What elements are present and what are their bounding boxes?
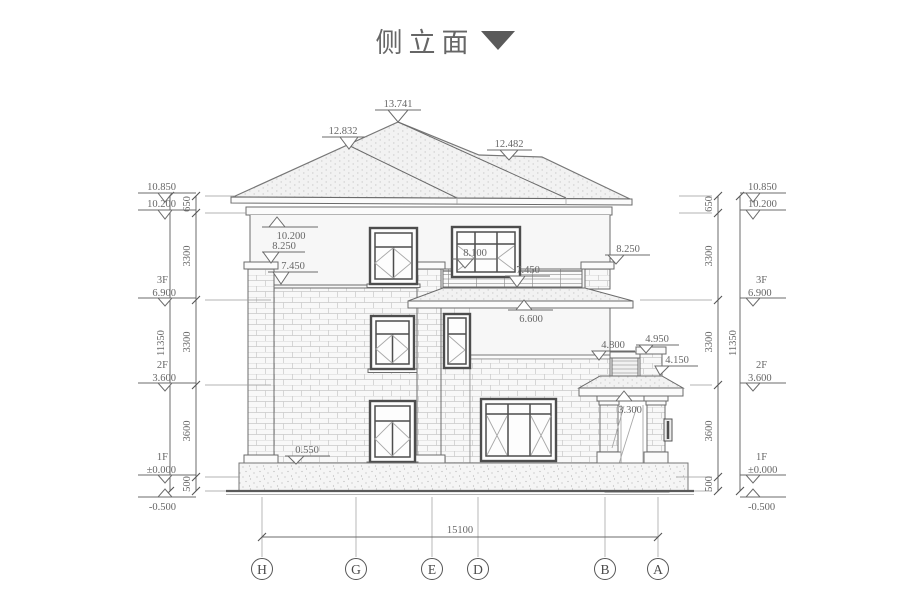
window-2f-left bbox=[368, 316, 417, 373]
pilaster-left bbox=[244, 262, 278, 464]
main-roof bbox=[231, 122, 632, 215]
svg-text:7.450: 7.450 bbox=[516, 265, 540, 276]
svg-text:4.950: 4.950 bbox=[645, 334, 669, 345]
axis-bubble-h: H bbox=[252, 559, 273, 580]
svg-text:3.300: 3.300 bbox=[618, 405, 642, 416]
dim-3300a-left: 3300 bbox=[182, 246, 193, 267]
svg-text:B: B bbox=[600, 562, 609, 577]
dim-500-right: 500 bbox=[704, 476, 715, 492]
svg-text:G: G bbox=[351, 562, 361, 577]
svg-text:±0.000: ±0.000 bbox=[147, 465, 176, 476]
plinth-and-ground bbox=[226, 463, 694, 495]
page-title: 侧立面 bbox=[376, 28, 475, 58]
svg-text:3.600: 3.600 bbox=[748, 373, 772, 384]
svg-text:4.150: 4.150 bbox=[665, 355, 689, 366]
axis-bubble-e: E bbox=[422, 559, 443, 580]
dim-3600-right: 3600 bbox=[704, 421, 715, 442]
title-arrow-icon bbox=[481, 31, 515, 50]
marker-cap-right-8250: 8.250 bbox=[605, 244, 650, 264]
dim-3300b-right: 3300 bbox=[704, 332, 715, 353]
axis-bubble-d: D bbox=[468, 559, 489, 580]
dim-3600-left: 3600 bbox=[182, 421, 193, 442]
svg-text:1F: 1F bbox=[157, 452, 168, 463]
porch-roof-fascia bbox=[579, 388, 683, 396]
eave-fascia bbox=[231, 197, 632, 205]
svg-text:D: D bbox=[473, 562, 483, 577]
level-2f-right: 2F 3.600 bbox=[740, 360, 786, 391]
svg-text:12.832: 12.832 bbox=[329, 126, 358, 137]
svg-text:8.100: 8.100 bbox=[463, 248, 487, 259]
porch-wall-light bbox=[664, 419, 672, 441]
svg-text:0.550: 0.550 bbox=[295, 445, 319, 456]
svg-text:12.482: 12.482 bbox=[495, 139, 524, 150]
svg-text:6.600: 6.600 bbox=[519, 314, 543, 325]
svg-text:3F: 3F bbox=[157, 275, 168, 286]
dim-15100: 15100 bbox=[447, 525, 473, 536]
level-3f-right: 3F 6.900 bbox=[740, 275, 786, 306]
bottom-axes: 15100 H G E D B A bbox=[252, 497, 669, 580]
svg-text:2F: 2F bbox=[157, 360, 168, 371]
roof-silhouette bbox=[233, 122, 630, 199]
axis-bubble-g: G bbox=[346, 559, 367, 580]
svg-text:8.250: 8.250 bbox=[272, 241, 296, 252]
svg-text:6.900: 6.900 bbox=[152, 288, 176, 299]
svg-text:1F: 1F bbox=[756, 452, 767, 463]
elevation-drawing-page: 侧立面 bbox=[0, 0, 910, 616]
svg-text:E: E bbox=[428, 562, 436, 577]
elevation-drawing: 侧立面 bbox=[0, 0, 910, 616]
axis-bubble-b: B bbox=[595, 559, 616, 580]
plinth bbox=[239, 463, 688, 491]
pilaster-balcony bbox=[581, 262, 614, 289]
level-2f-left: 2F 3.600 bbox=[138, 360, 196, 391]
svg-text:±0.000: ±0.000 bbox=[748, 465, 777, 476]
axis-bubble-a: A bbox=[648, 559, 669, 580]
svg-text:10.850: 10.850 bbox=[147, 182, 176, 193]
level-3f-left: 3F 6.900 bbox=[138, 275, 196, 306]
parapet-louver bbox=[612, 358, 638, 378]
dim-650-right: 650 bbox=[704, 196, 715, 212]
svg-text:10.200: 10.200 bbox=[147, 199, 176, 210]
dim-3300a-right: 3300 bbox=[704, 246, 715, 267]
second-floor-band bbox=[470, 355, 610, 359]
window-2f-middle bbox=[444, 314, 470, 368]
level-1f-right: 1F ±0.000 bbox=[740, 452, 786, 483]
svg-text:H: H bbox=[257, 562, 267, 577]
svg-text:6.900: 6.900 bbox=[748, 288, 772, 299]
window-1f-left bbox=[367, 401, 418, 466]
svg-text:3.600: 3.600 bbox=[152, 373, 176, 384]
svg-text:10.200: 10.200 bbox=[748, 199, 777, 210]
window-1f-right bbox=[481, 399, 556, 461]
level-ground-right: -0.500 bbox=[740, 489, 786, 513]
dim-500-left: 500 bbox=[182, 476, 193, 492]
level-10200-right: 10.200 bbox=[740, 199, 786, 219]
svg-text:7.450: 7.450 bbox=[281, 261, 305, 272]
svg-text:3F: 3F bbox=[756, 275, 767, 286]
marker-peak: 13.741 bbox=[375, 99, 421, 122]
svg-text:10.850: 10.850 bbox=[748, 182, 777, 193]
ring-beam-band bbox=[246, 207, 612, 215]
svg-text:-0.500: -0.500 bbox=[748, 502, 775, 513]
svg-text:13.741: 13.741 bbox=[384, 99, 413, 110]
svg-text:-0.500: -0.500 bbox=[149, 502, 176, 513]
dim-overall-left: 11350 bbox=[156, 330, 167, 356]
window-3f-left bbox=[367, 228, 420, 288]
svg-text:A: A bbox=[653, 562, 663, 577]
svg-text:2F: 2F bbox=[756, 360, 767, 371]
dim-3300b-left: 3300 bbox=[182, 332, 193, 353]
dim-overall-right: 11350 bbox=[728, 330, 739, 356]
drawing-title: 侧立面 bbox=[376, 28, 516, 58]
svg-text:8.250: 8.250 bbox=[616, 244, 640, 255]
svg-text:4.800: 4.800 bbox=[601, 340, 625, 351]
